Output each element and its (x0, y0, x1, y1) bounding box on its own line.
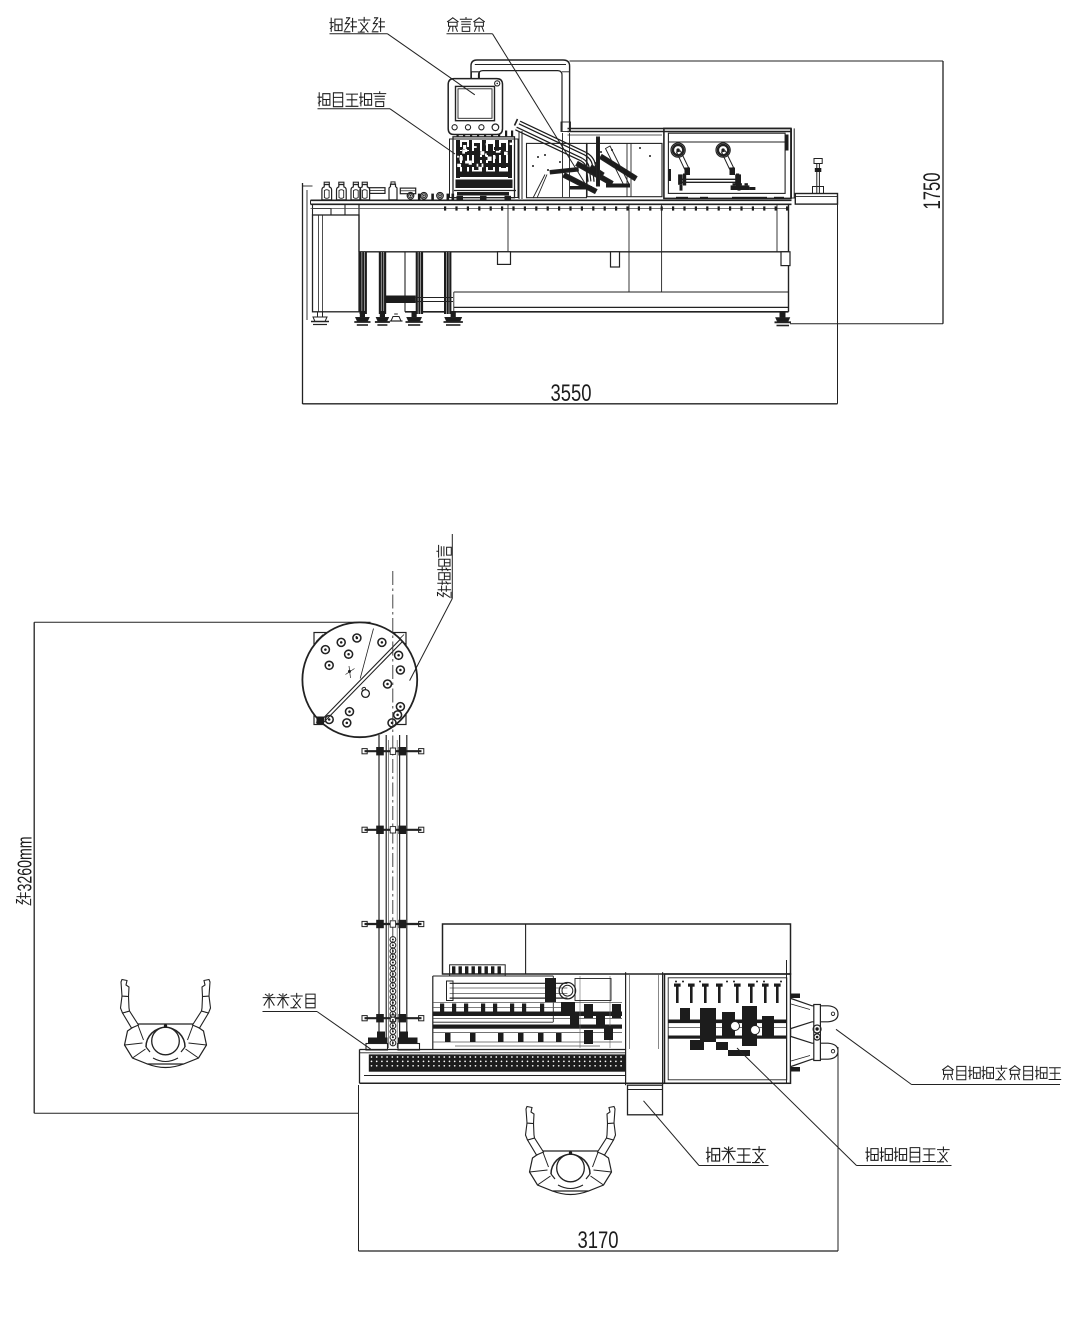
svg-text:3260mm: 3260mm (15, 837, 37, 892)
svg-text:3550: 3550 (551, 380, 592, 407)
svg-text:3170: 3170 (578, 1227, 619, 1254)
svg-text:1750: 1750 (919, 173, 946, 210)
